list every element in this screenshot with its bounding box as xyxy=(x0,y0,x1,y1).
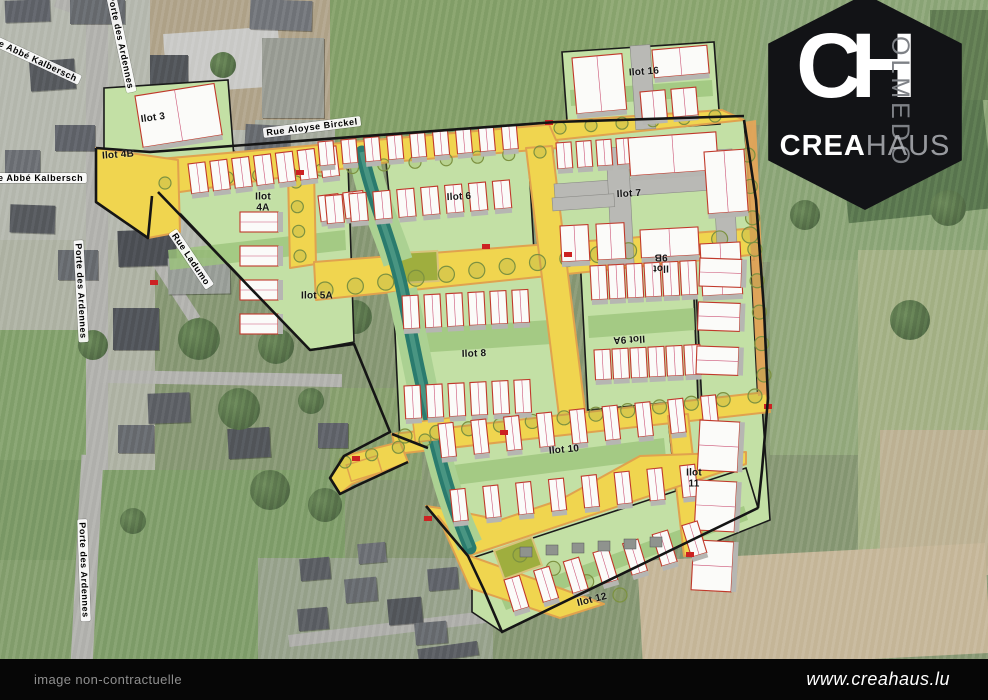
ilot-6-label: Ilot 6 xyxy=(446,191,471,203)
building-cluster xyxy=(696,258,747,376)
footer-bar: image non-contractuelle www.creahaus.lu xyxy=(0,659,988,700)
ilot-8-label: Ilot 8 xyxy=(462,348,487,360)
ilot-11-label: Ilot 11 xyxy=(681,469,707,490)
ilot-4b-label: Ilot 4B xyxy=(102,148,135,161)
ilot-4a-label: Ilot 4A xyxy=(250,193,276,214)
website-url: www.creahaus.lu xyxy=(806,669,950,690)
logo-wordmark-bold: CREA xyxy=(780,130,866,162)
building-cluster xyxy=(572,54,627,119)
building-cluster xyxy=(652,45,710,83)
building-cluster xyxy=(704,149,749,219)
logo-wordmark-light: HAUS xyxy=(866,130,951,162)
rue-abbe-kalbersch-lower-label: Rue Abbé Kalbersch xyxy=(0,173,86,183)
ilot-7-label: Ilot 7 xyxy=(616,188,641,200)
logo-wordmark: CREAHAUS xyxy=(762,132,968,161)
ilot-5a-label: Ilot 5A xyxy=(301,291,333,302)
disclaimer-text: image non-contractuelle xyxy=(34,672,182,687)
ilot-9a-label: Ilot 9A xyxy=(613,333,646,346)
ilot-16-label: Ilot 16 xyxy=(629,65,660,78)
site-plan-image: Ilot 3Ilot 4BIlot 4AIlot 5AIlot 6Ilot 7I… xyxy=(0,0,988,700)
ilot-9b-label: Ilot 9B xyxy=(648,252,674,273)
building-cluster xyxy=(691,420,745,592)
